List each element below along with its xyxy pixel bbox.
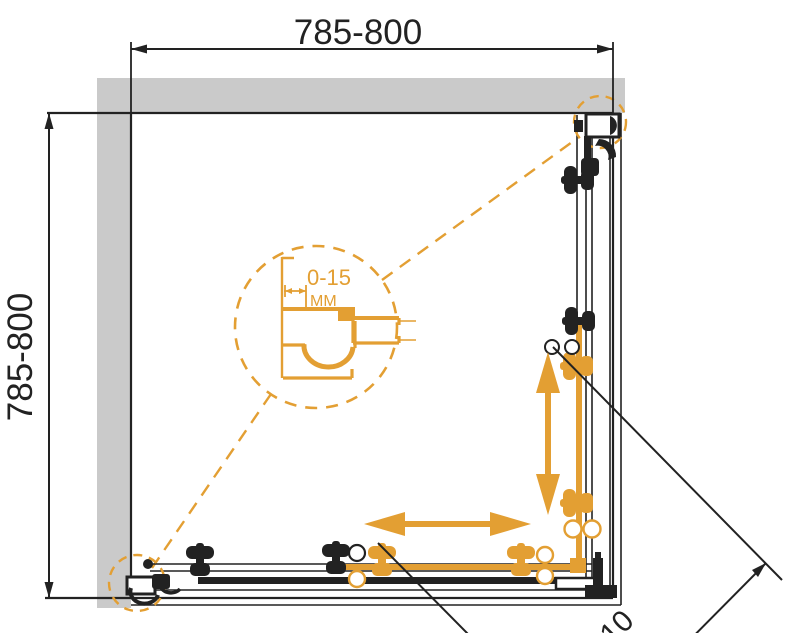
wheel-black-small (143, 559, 153, 569)
wheel-orange (584, 521, 601, 538)
slide-arrow-vertical (536, 352, 560, 515)
wheel-orange (349, 571, 365, 587)
left-dimension-label: 785-800 (1, 293, 40, 421)
top-dimension-arrow-left (131, 45, 147, 54)
bottom-rail-profile-bar (198, 577, 592, 584)
wheel-black (565, 340, 579, 354)
top-dimension-arrow-right (597, 45, 613, 54)
door-corner-joint (570, 558, 586, 573)
diagonal-dimension-line (660, 563, 766, 633)
slide-direction-arrows (364, 352, 560, 536)
wheel-black (349, 545, 365, 561)
top-wall (97, 78, 625, 113)
wheel-orange (565, 521, 582, 538)
roller-orange-bottom-2 (507, 543, 535, 576)
diagonal-extension-line-1 (553, 347, 782, 580)
wheel-orange (537, 568, 553, 584)
left-dimension-arrow-top (45, 113, 54, 129)
corner-bracket-bottom-left (127, 574, 180, 604)
detail-wall-line (282, 257, 294, 378)
plan-canvas: 0-15 MM (0, 0, 800, 633)
detail-dimension-marks (284, 285, 306, 308)
slide-arrow-horizontal (364, 512, 531, 536)
adjustment-range-label: 0-15 (307, 265, 351, 290)
left-dimension: 785-800 (1, 113, 54, 598)
enclosure-frame (45, 113, 613, 598)
diagonal-dimension-label: 10 (594, 604, 641, 633)
wall-profile-detail: 0-15 MM (282, 257, 416, 378)
detail-leader-lines (152, 137, 579, 568)
detail-profile-shape (283, 309, 416, 378)
left-dimension-arrow-bottom (45, 582, 54, 598)
left-wall (97, 78, 131, 608)
door-rollers (186, 166, 595, 576)
roller-black-bottom-2 (322, 541, 350, 574)
detail-leader-bottom-left (152, 394, 271, 568)
detail-leader-top-right (382, 137, 579, 280)
diagonal-extension-line-2 (378, 543, 468, 633)
wheel-orange (537, 547, 553, 563)
top-dimension-label: 785-800 (294, 13, 422, 52)
shower-enclosure-plan-drawing: 0-15 MM (0, 0, 800, 633)
roller-black-bottom-1 (186, 543, 214, 576)
